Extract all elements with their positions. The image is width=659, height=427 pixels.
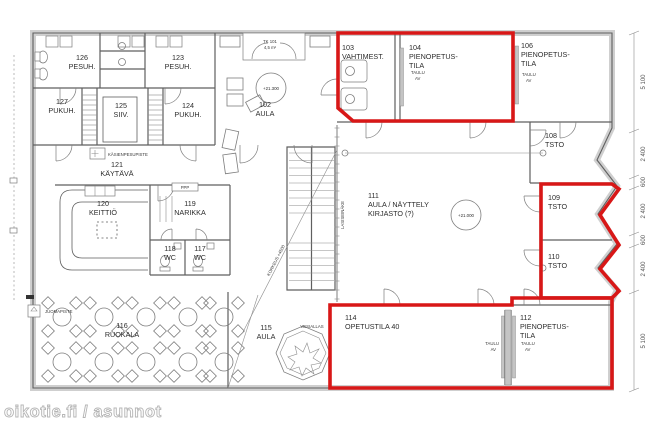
dim-2400-c: 2 400 [641, 261, 647, 277]
room-number-119: 119 [184, 199, 195, 208]
board-label-106: TAULU [522, 72, 536, 77]
room-name-116: RUOKALA [105, 330, 140, 339]
dim-2400-b: 2 400 [641, 203, 647, 219]
glass-wall-label: LASISEINÄKE [340, 201, 345, 229]
room-number-102: 102 [259, 100, 271, 109]
room-name-108: TSTO [545, 140, 564, 149]
room-number-127: 127 [56, 97, 68, 106]
room-name-104: PIENOPETUS- [409, 52, 458, 61]
elevation-value: +21.000 [458, 213, 475, 218]
room-number-126: 126 [76, 53, 88, 62]
dim-2400-a: 2 400 [641, 146, 647, 162]
handwash-label: KÄSIENPESUPISTE [108, 152, 148, 157]
dim-5100-top: 5 100 [641, 74, 647, 90]
board-av-label-104: AV [415, 76, 421, 81]
watermark-logo: oikotie.fi / asunnot [4, 403, 162, 421]
room-name2-106: TILA [521, 59, 536, 68]
room-name2-112: TILA [520, 331, 535, 340]
board-label-112: TAULU [521, 341, 535, 346]
room-name-115: AULA [257, 332, 276, 341]
ppp-label: PPP [181, 185, 190, 190]
room-name-123: PESUH. [165, 62, 192, 71]
korkeus-label: KORKEUS +4500 [266, 243, 286, 276]
elevation-value: +21.300 [263, 86, 280, 91]
tk-label: TK 101 [263, 39, 277, 44]
floor-plan-page: KORKEUS +4500 [0, 0, 659, 427]
dimension-column: 5 100 2 400 600 2 400 600 2 400 5 100 [629, 31, 647, 392]
room-name-126: PESUH. [69, 62, 96, 71]
board-label-114: TAULU [485, 341, 499, 346]
dim-5100-bottom: 5 100 [641, 333, 647, 349]
room-name-118: WC [164, 253, 176, 262]
room-number-120: 120 [97, 199, 109, 208]
room-name-124: PUKUH. [174, 110, 201, 119]
room-number-106: 106 [521, 41, 533, 50]
room-number-117: 117 [194, 244, 205, 253]
dim-600-b: 600 [641, 234, 647, 245]
room-name-127: PUKUH. [48, 106, 75, 115]
room-name2-111: KIRJASTO (?) [368, 209, 414, 218]
room-number-108: 108 [545, 131, 557, 140]
board-label-104: TAULU [411, 70, 425, 75]
drinking-point-label: JUOMAPISTE [45, 309, 73, 314]
room-name-103: VAHTIMEST. [342, 52, 384, 61]
highlight-box-114-112 [330, 298, 612, 388]
room-name-109: TSTO [548, 202, 567, 211]
room-labels: 126 PESUH. 123 PESUH. 127 PUKUH. 125 SII… [48, 41, 570, 341]
room-name-102: AULA [256, 109, 275, 118]
room-name-114: OPETUSTILA 40 [345, 322, 399, 331]
dim-600-a: 600 [641, 176, 647, 187]
water-basin [276, 326, 330, 380]
room-number-112: 112 [520, 313, 531, 322]
room-number-121: 121 [111, 160, 123, 169]
room-number-104: 104 [409, 43, 421, 52]
elevation-marker-111: +21.000 [451, 200, 481, 230]
room-name-111: AULA / NÄYTTELY [368, 200, 429, 209]
room-number-116: 116 [116, 321, 127, 330]
room-name-106: PIENOPETUS- [521, 50, 570, 59]
room-number-109: 109 [548, 193, 560, 202]
elevation-marker-102: +21.300 [256, 73, 286, 103]
room-name-110: TSTO [548, 261, 567, 270]
room-name-112: PIENOPETUS- [520, 322, 569, 331]
board-av-label-106: AV [526, 78, 532, 83]
height-reference-line: KORKEUS +4500 [243, 150, 337, 332]
board-av-label-114: AV [491, 347, 497, 352]
room-name-121: KÄYTÄVÄ [100, 169, 133, 178]
room-name-120: KEITTIÖ [89, 208, 117, 217]
board-av-label-112: AV [525, 347, 531, 352]
room-number-123: 123 [172, 53, 184, 62]
room-name-125: SIIV. [114, 110, 129, 119]
room-number-118: 118 [164, 244, 175, 253]
room-name-119: NARIKKA [174, 208, 206, 217]
room-number-111: 111 [368, 191, 379, 200]
floor-plan: KORKEUS +4500 [0, 0, 659, 427]
room-number-103: 103 [342, 43, 354, 52]
room-number-110: 110 [548, 252, 559, 261]
room-number-115: 115 [260, 323, 271, 332]
water-basin-label: VESIALLAS [300, 324, 323, 329]
door-arcs [56, 79, 576, 305]
room-number-124: 124 [182, 101, 194, 110]
room-number-125: 125 [115, 101, 127, 110]
fixtures [10, 33, 546, 378]
room-number-114: 114 [345, 313, 356, 322]
tk-area-label: 4,5 m² [264, 45, 277, 50]
room-name-117: WC [194, 253, 206, 262]
room-name2-104: TILA [409, 61, 424, 70]
